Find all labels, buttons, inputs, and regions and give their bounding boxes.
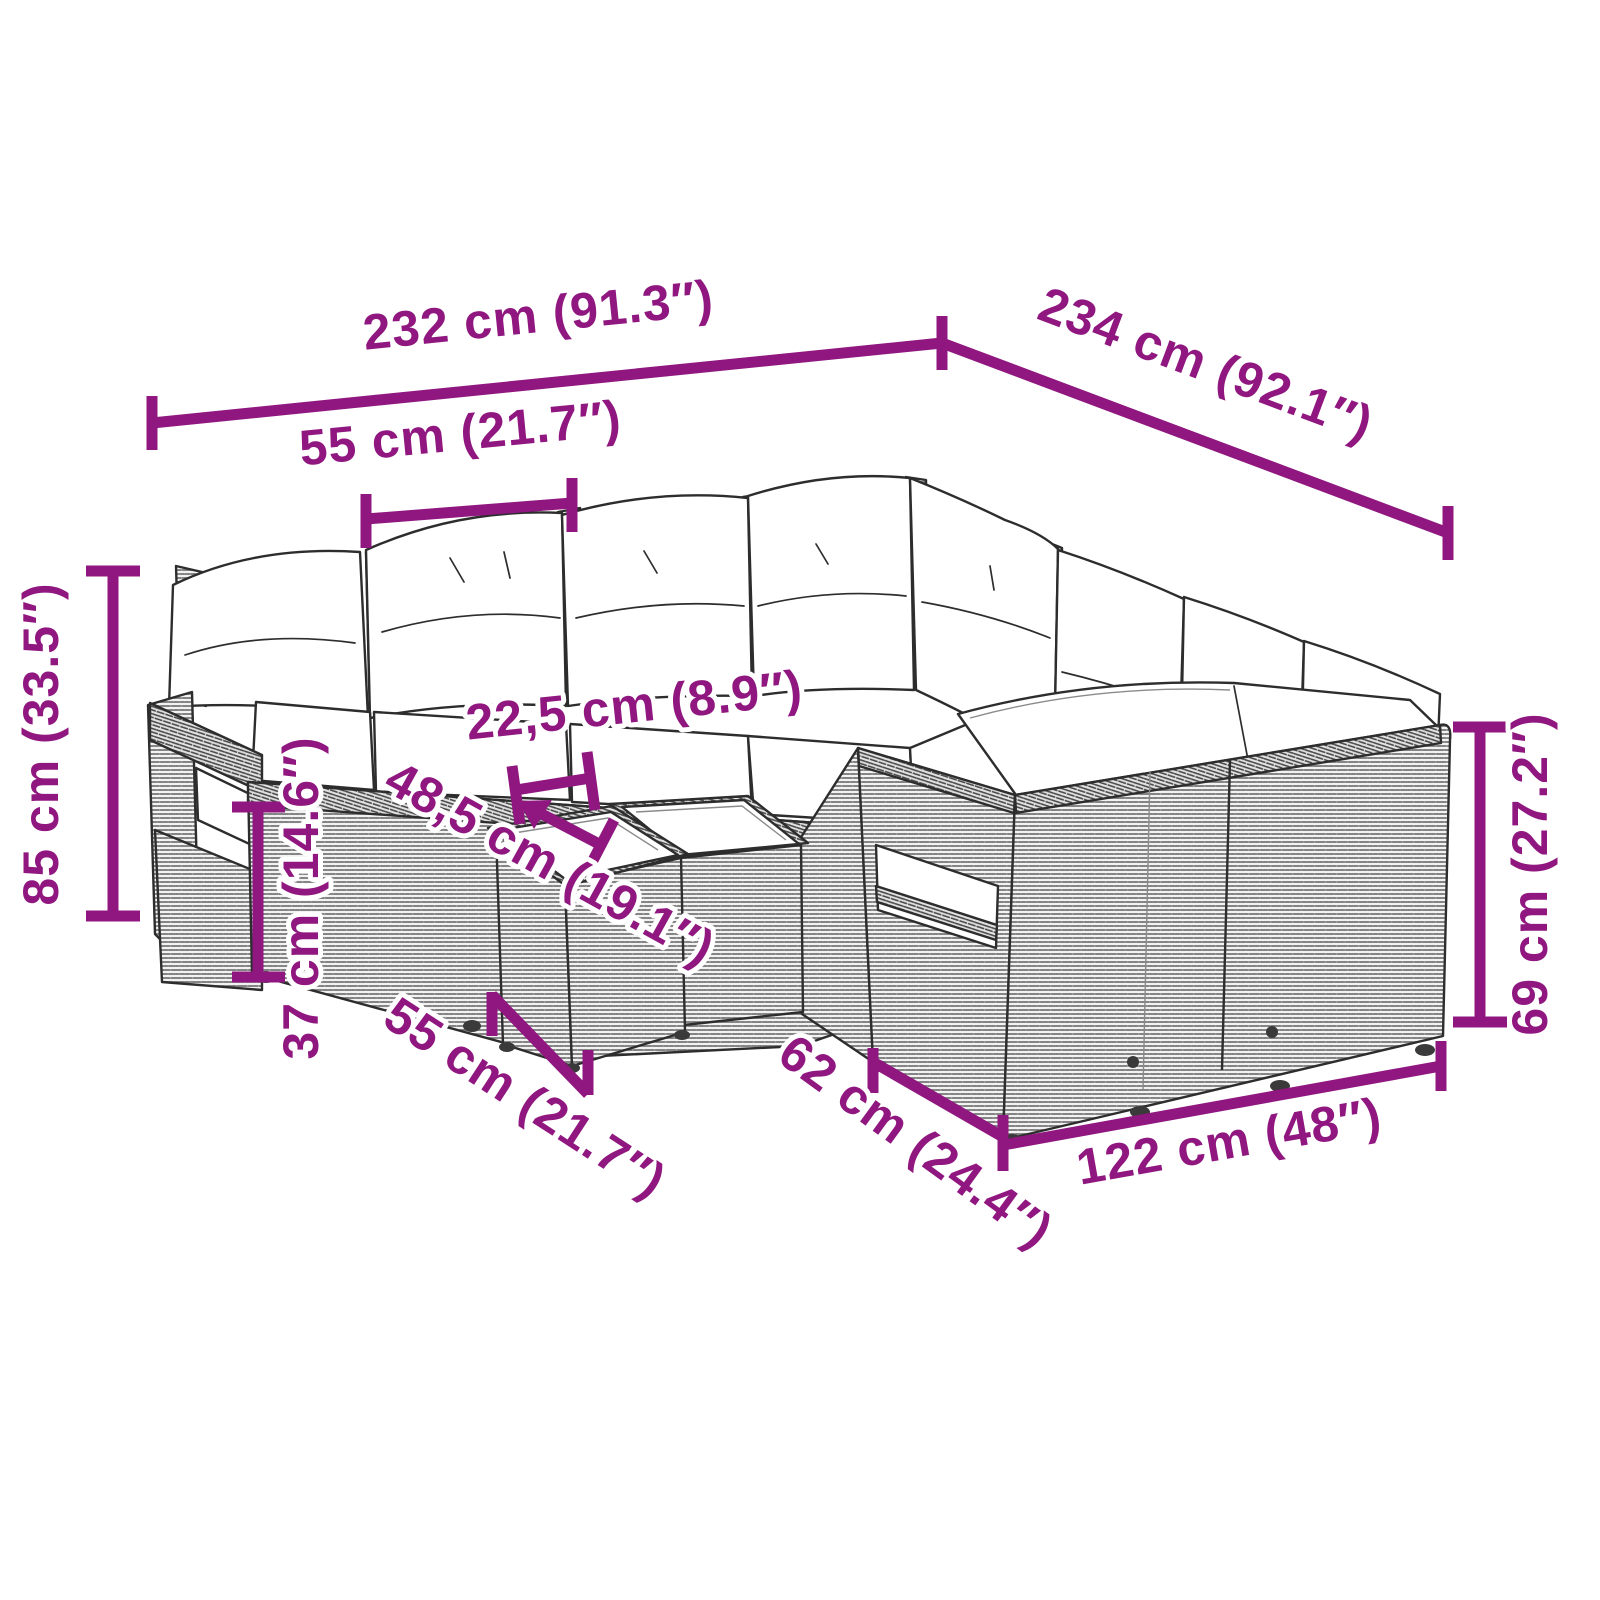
left-armrest: [148, 692, 262, 990]
sofa-foot: [1415, 1044, 1435, 1056]
dimension-label-seat-height: 37 cm (14.6″): [273, 736, 329, 1059]
dimension-label-backrest-height: 69 cm (27.2″): [1502, 712, 1558, 1035]
dimension-backrest-height: 69 cm (27.2″): [1453, 712, 1558, 1035]
dimension-label-overall-depth: 234 cm (92.1″): [1031, 276, 1380, 452]
armrest-lower-body: [155, 830, 262, 990]
dimension-label-overall-height: 85 cm (33.5″): [13, 582, 69, 905]
screw-cap: [1266, 1026, 1278, 1038]
right-back-wall: [1002, 725, 1450, 1146]
product-dimension-diagram: 232 cm (91.3″) 234 cm (92.1″) 55 cm (21.…: [0, 0, 1600, 1600]
dimension-overall-depth: 234 cm (92.1″): [942, 276, 1448, 560]
screw-cap: [1127, 1056, 1139, 1068]
sofa-dimension-drawing: 232 cm (91.3″) 234 cm (92.1″) 55 cm (21.…: [0, 0, 1600, 1600]
dimension-overall-height: 85 cm (33.5″): [13, 571, 140, 916]
table-foot: [674, 1030, 690, 1040]
dimension-label-overall-width: 232 cm (91.3″): [360, 269, 716, 360]
back-pillow: [169, 551, 368, 718]
